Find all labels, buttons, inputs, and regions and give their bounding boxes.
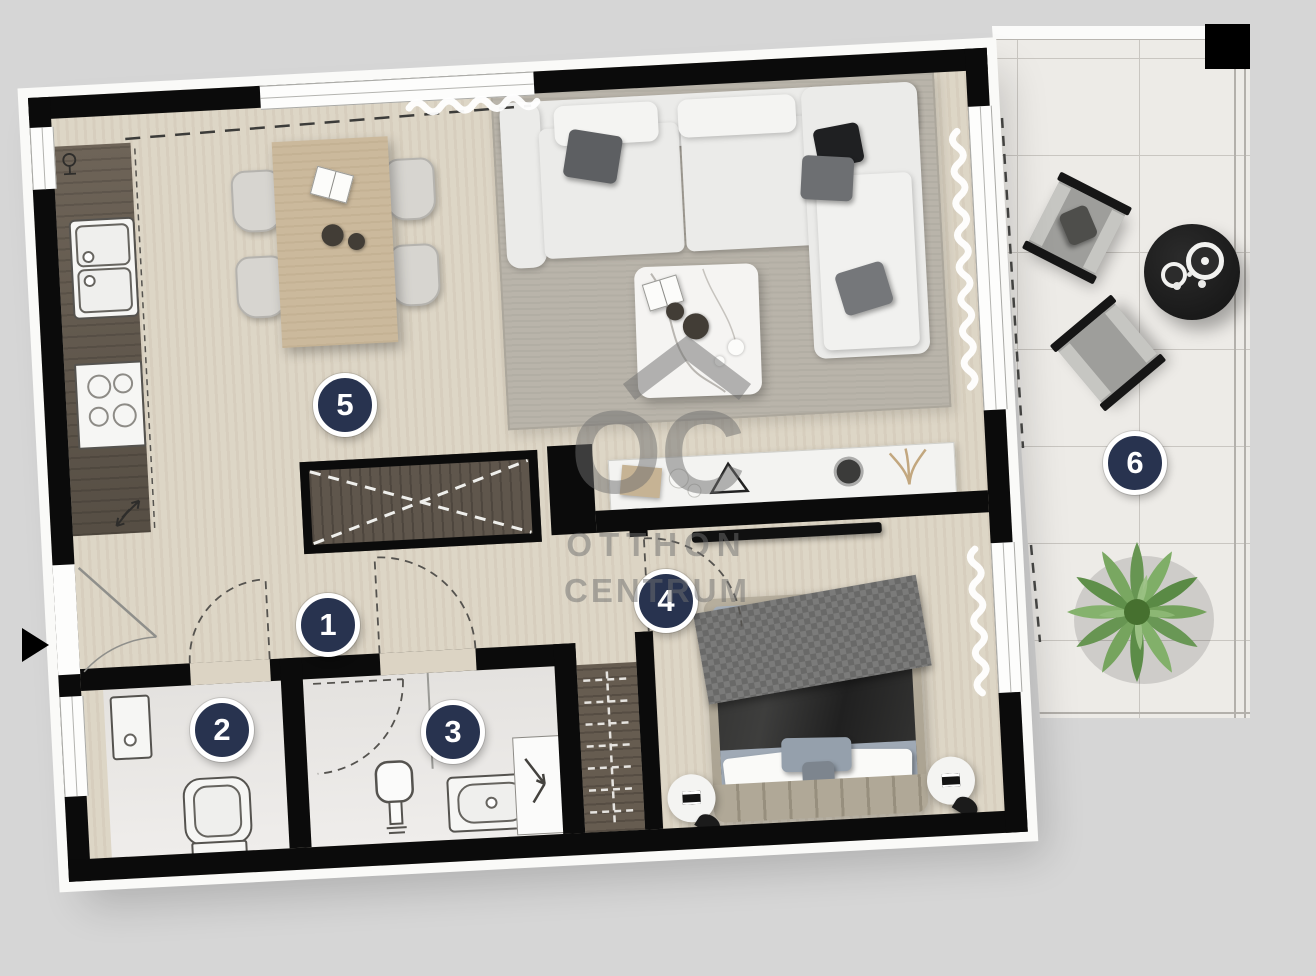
badge-number: 4: [657, 583, 674, 619]
plan-linework: [28, 48, 1028, 882]
badge-number: 2: [213, 712, 230, 748]
wc-door-swing: [186, 579, 270, 663]
floorplan-canvas: 1 2 3 4 5 6 OC OTTHON CENTRUM: [0, 0, 1316, 976]
room-badge-2: 2: [190, 698, 254, 762]
column-marker: [1205, 24, 1250, 69]
badge-number: 3: [444, 714, 461, 750]
glass-icon: [63, 154, 76, 175]
room-badge-1: 1: [296, 593, 360, 657]
badge-number: 6: [1126, 445, 1143, 481]
curtain-icon: [970, 549, 988, 693]
terrace-threshold-lines: [990, 24, 1252, 720]
terrace: [990, 24, 1252, 720]
entrance-arrow-icon: [22, 628, 49, 662]
electric-arrow-icon: [115, 501, 140, 526]
counter-dashed-line: [135, 148, 155, 527]
apartment: [28, 48, 1028, 882]
room-badge-4: 4: [634, 569, 698, 633]
room-badge-3: 3: [421, 700, 485, 764]
room-badge-6: 6: [1103, 431, 1167, 495]
entrance-door-leaf: [79, 564, 157, 641]
entrance-door-arc: [82, 637, 158, 672]
shower-door-swing: [313, 679, 408, 774]
curtain-icon: [952, 131, 975, 387]
bathroom-door-swing: [375, 552, 476, 653]
badge-number: 1: [319, 607, 336, 643]
room-badge-5: 5: [313, 373, 377, 437]
curtain-icon: [409, 96, 537, 113]
badge-number: 5: [336, 387, 353, 423]
